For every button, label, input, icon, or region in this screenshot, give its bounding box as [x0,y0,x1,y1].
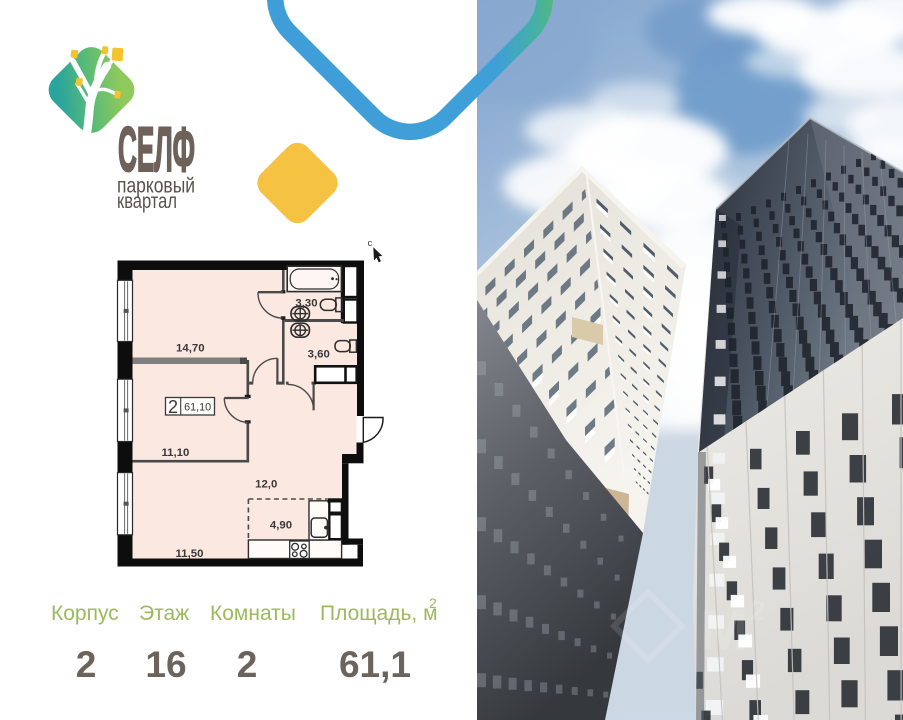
svg-text:61,10: 61,10 [184,402,211,414]
svg-text:М: М [700,598,748,663]
svg-text:2: 2 [429,595,437,611]
svg-text:16: 16 [145,644,186,685]
svg-text:4,90: 4,90 [270,520,292,532]
svg-text:Комнаты: Комнаты [210,602,296,625]
svg-text:3,60: 3,60 [308,349,330,361]
svg-text:2: 2 [168,397,178,417]
svg-text:2: 2 [750,595,766,626]
svg-text:Этаж: Этаж [139,602,189,625]
svg-text:11,50: 11,50 [176,548,204,560]
svg-text:61,1: 61,1 [339,644,411,685]
svg-text:квартал: квартал [117,190,177,213]
svg-text:2: 2 [237,644,258,685]
svg-text:11,10: 11,10 [161,447,189,459]
svg-text:Площадь, м: Площадь, м [320,602,438,625]
svg-text:с: с [368,238,373,249]
svg-text:12,0: 12,0 [255,479,277,491]
svg-text:3,30: 3,30 [295,297,317,309]
svg-text:Корпус: Корпус [51,602,119,625]
svg-text:2: 2 [76,644,97,685]
svg-text:14,70: 14,70 [176,343,205,355]
